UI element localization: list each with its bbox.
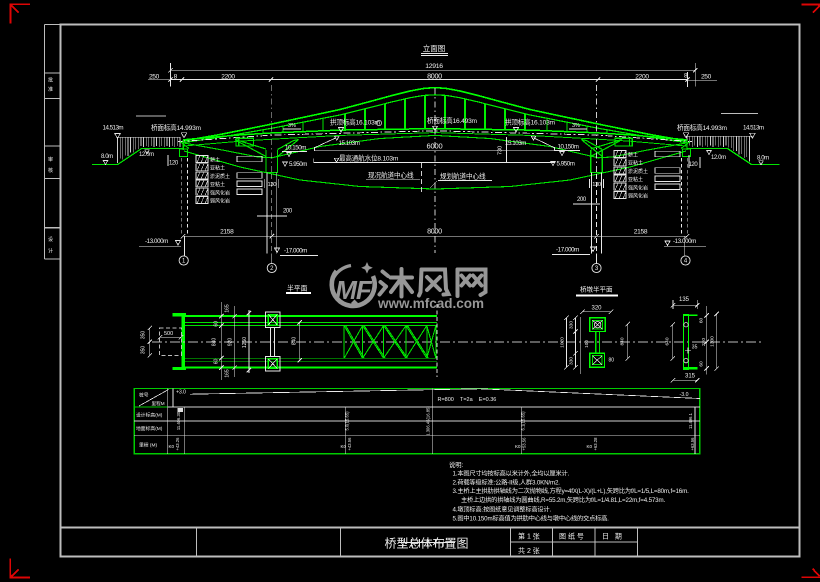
svg-text:500: 500: [164, 331, 173, 337]
svg-text:+63.28: +63.28: [593, 437, 598, 451]
svg-text:立面图: 立面图: [423, 43, 446, 53]
svg-text:1.306.45(16.85): 1.306.45(16.85): [426, 406, 431, 436]
svg-text:840: 840: [212, 338, 218, 347]
svg-text:60: 60: [699, 361, 705, 367]
svg-text:-13.000m: -13.000m: [673, 238, 696, 245]
svg-text:11.496.1: 11.496.1: [688, 412, 693, 429]
svg-text:1020: 1020: [560, 337, 566, 348]
svg-text:8: 8: [174, 74, 178, 81]
svg-text:6.1(15.65): 6.1(15.65): [521, 411, 526, 431]
svg-text:12916: 12916: [425, 63, 443, 70]
svg-text:315: 315: [685, 374, 696, 380]
svg-text:350: 350: [140, 346, 146, 355]
svg-text:12.0m: 12.0m: [711, 155, 726, 161]
svg-text:120: 120: [169, 161, 179, 167]
svg-text:耕土: 耕土: [210, 157, 220, 164]
svg-text:核: 核: [48, 167, 53, 174]
svg-text:640: 640: [665, 337, 671, 345]
svg-text:里程M: 里程M: [152, 400, 165, 407]
svg-text:840: 840: [620, 337, 626, 345]
svg-text:说明:: 说明:: [449, 460, 464, 469]
svg-text:5.950m: 5.950m: [289, 161, 307, 168]
svg-text:5.950m: 5.950m: [557, 161, 575, 168]
svg-text:批: 批: [48, 77, 53, 84]
svg-text:4.墩顶标高:按图纸意见调整标高设计.: 4.墩顶标高:按图纸意见调整标高设计.: [453, 506, 552, 514]
svg-text:100: 100: [584, 340, 589, 348]
svg-text:165: 165: [225, 369, 231, 378]
svg-text:5.0(15.65): 5.0(15.65): [345, 411, 350, 431]
svg-text:桥面标高14.993m: 桥面标高14.993m: [677, 123, 728, 132]
svg-text:亚粘土: 亚粘土: [210, 181, 225, 188]
svg-text:淤泥质土: 淤泥质土: [628, 168, 648, 175]
svg-text:半平面: 半平面: [287, 283, 308, 292]
svg-text:14.513m: 14.513m: [103, 125, 124, 132]
svg-text:拱顶标高16.103m: 拱顶标高16.103m: [505, 118, 556, 127]
svg-text:强风化岩: 强风化岩: [210, 189, 230, 196]
svg-text:1300: 1300: [710, 336, 716, 347]
svg-text:+43.56: +43.56: [347, 437, 352, 451]
svg-text:60: 60: [214, 321, 220, 327]
svg-text:920: 920: [228, 338, 234, 347]
svg-text:桥型总体布置图: 桥型总体布置图: [384, 537, 468, 551]
svg-text:+3.0: +3.0: [176, 390, 186, 396]
svg-text:730: 730: [498, 146, 504, 155]
svg-text:亚粘土: 亚粘土: [210, 165, 225, 172]
svg-text:840: 840: [292, 337, 298, 346]
svg-text:2158: 2158: [220, 228, 234, 235]
svg-text:图 纸 号: 图 纸 号: [559, 532, 584, 541]
svg-text:桥面标高14.993m: 桥面标高14.993m: [151, 123, 202, 132]
svg-text:200: 200: [577, 197, 587, 203]
svg-text:耕土: 耕土: [628, 152, 638, 159]
svg-text:165: 165: [225, 304, 231, 313]
svg-text:弱风化岩: 弱风化岩: [628, 193, 648, 200]
svg-text:60: 60: [699, 318, 705, 324]
svg-text:www.mfcad.com: www.mfcad.com: [377, 296, 484, 311]
svg-text:15.103m: 15.103m: [505, 140, 526, 147]
svg-text:+63.56: +63.56: [690, 437, 695, 451]
svg-text:80: 80: [609, 358, 615, 364]
svg-text:准: 准: [48, 86, 53, 93]
svg-text:桩号: 桩号: [139, 392, 149, 399]
svg-text:8.0m: 8.0m: [101, 154, 113, 160]
svg-text:11.406.30: 11.406.30: [176, 411, 181, 430]
svg-text:K0: K0: [587, 444, 593, 449]
svg-text:330: 330: [569, 321, 575, 329]
svg-text:里程 (M): 里程 (M): [139, 442, 158, 449]
svg-text:35: 35: [692, 345, 698, 351]
svg-text:1.本图尺寸均按标高以米计外,全均以厘米计.: 1.本图尺寸均按标高以米计外,全均以厘米计.: [453, 470, 570, 478]
svg-text:10.150m: 10.150m: [285, 144, 306, 151]
svg-text:+43.26: +43.26: [175, 437, 180, 451]
svg-text:最高通航水位8.103m: 最高通航水位8.103m: [339, 154, 399, 163]
svg-text:弱风化岩: 弱风化岩: [210, 198, 230, 205]
svg-text:3%: 3%: [572, 123, 580, 129]
svg-text:-13.000m: -13.000m: [145, 238, 168, 245]
svg-text:200: 200: [283, 209, 293, 215]
svg-text:280: 280: [701, 338, 707, 346]
svg-text:14.513m: 14.513m: [743, 125, 764, 132]
svg-text:第 1 张: 第 1 张: [518, 532, 540, 541]
svg-text:120: 120: [689, 162, 699, 168]
svg-text:淤泥质土: 淤泥质土: [210, 173, 230, 180]
svg-text:8000: 8000: [427, 226, 442, 235]
svg-text:130: 130: [268, 182, 277, 188]
svg-text:主桥上边拱的拱轴线为圆曲线,R=55.2m,矢跨比为f/L=: 主桥上边拱的拱轴线为圆曲线,R=55.2m,矢跨比为f/L=1/4.81,L=2…: [461, 496, 665, 504]
svg-text:5.图中10.150m标高值为拱肋中心线与墩中心线的交点标高: 5.图中10.150m标高值为拱肋中心线与墩中心线的交点标高.: [453, 515, 610, 523]
svg-text:8000: 8000: [427, 72, 442, 81]
svg-text:130: 130: [592, 182, 601, 188]
svg-text:日 期: 日 期: [602, 533, 622, 541]
svg-text:桥面标高16.493m: 桥面标高16.493m: [427, 116, 478, 125]
svg-text:15.103m: 15.103m: [339, 140, 360, 147]
svg-text:135: 135: [679, 297, 690, 303]
svg-text:设计标高(M): 设计标高(M): [136, 412, 163, 419]
svg-text:设: 设: [48, 236, 53, 243]
svg-text:8: 8: [684, 72, 688, 79]
svg-text:桥墩半平面: 桥墩半平面: [580, 285, 613, 294]
svg-text:3.主桥上主拱肋拱轴线为二次抛物线,方程y=4fX(L-X): 3.主桥上主拱肋拱轴线为二次抛物线,方程y=4fX(L-X)/(L+L),矢跨比…: [453, 487, 690, 495]
svg-text:规划航道中心线: 规划航道中心线: [440, 172, 486, 181]
svg-text:2200: 2200: [635, 74, 649, 81]
svg-text:强风化岩: 强风化岩: [628, 184, 648, 191]
svg-text:-17.000m: -17.000m: [556, 247, 579, 254]
svg-text:350: 350: [140, 331, 146, 340]
svg-text:-3.0: -3.0: [680, 392, 689, 398]
svg-text:320: 320: [591, 306, 602, 312]
svg-text:亚粘土: 亚粘土: [628, 160, 643, 167]
svg-text:330: 330: [569, 357, 575, 365]
svg-text:拱顶标高16.103m: 拱顶标高16.103m: [330, 118, 381, 127]
svg-text:现况航道中心线: 现况航道中心线: [368, 170, 414, 179]
svg-text:6000: 6000: [427, 141, 443, 150]
svg-text:2200: 2200: [221, 74, 235, 81]
svg-text:K0: K0: [515, 444, 521, 449]
svg-text:60: 60: [214, 359, 220, 365]
svg-text:共 2 张: 共 2 张: [518, 546, 540, 555]
svg-text:2158: 2158: [634, 228, 648, 235]
svg-text:1250: 1250: [242, 337, 248, 348]
svg-text:3%: 3%: [288, 123, 296, 129]
svg-text:-17.000m: -17.000m: [284, 248, 307, 255]
svg-text:K0: K0: [169, 444, 175, 449]
svg-text:10.150m: 10.150m: [558, 143, 579, 150]
svg-text:亚粘土: 亚粘土: [628, 176, 643, 183]
svg-text:计: 计: [48, 248, 53, 255]
svg-text:K0: K0: [341, 444, 347, 449]
svg-text:地面标高(M): 地面标高(M): [136, 425, 163, 432]
svg-text:+53.56: +53.56: [522, 437, 527, 451]
svg-text:审: 审: [48, 156, 53, 163]
svg-text:2.荷载等级标准:公路-II级,人群3.0KN/m2.: 2.荷载等级标准:公路-II级,人群3.0KN/m2.: [453, 479, 561, 487]
svg-text:R=800 T=2a E=0.36: R=800 T=2a E=0.36: [438, 397, 497, 403]
svg-text:250: 250: [701, 74, 712, 81]
